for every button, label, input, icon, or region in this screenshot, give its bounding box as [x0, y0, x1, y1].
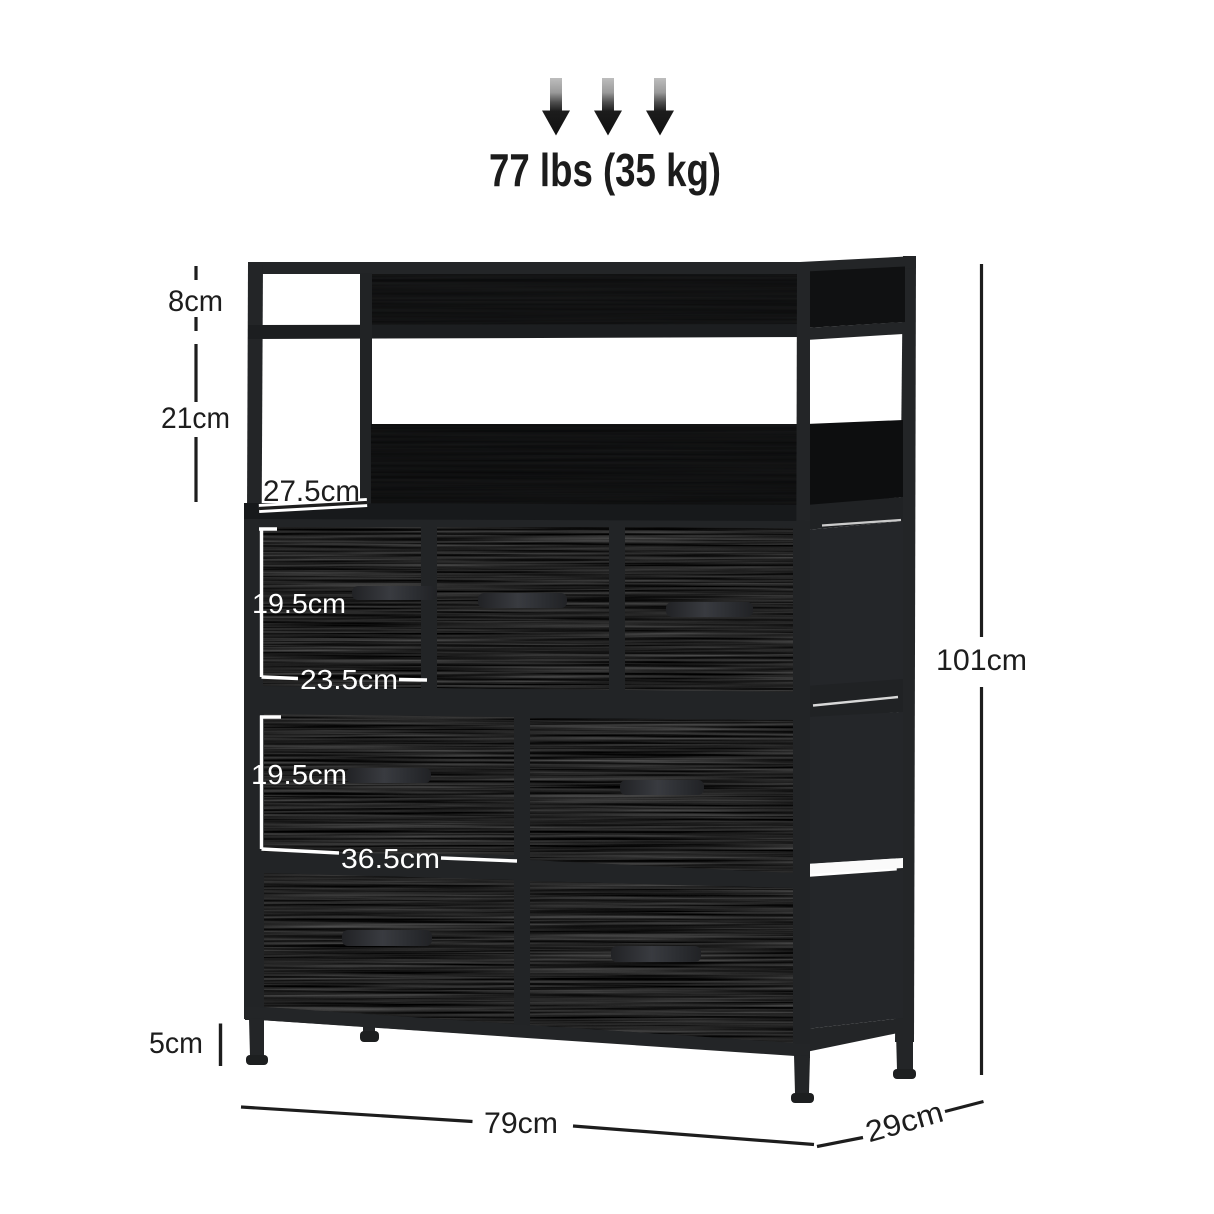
svg-text:101cm: 101cm: [936, 644, 1027, 677]
svg-text:79cm: 79cm: [484, 1107, 558, 1140]
svg-text:19.5cm: 19.5cm: [251, 759, 347, 790]
svg-text:36.5cm: 36.5cm: [341, 843, 440, 874]
svg-text:27.5cm: 27.5cm: [263, 475, 360, 508]
svg-text:23.5cm: 23.5cm: [300, 664, 398, 695]
svg-text:8cm: 8cm: [168, 285, 223, 318]
svg-text:19.5cm: 19.5cm: [252, 588, 346, 619]
svg-text:5cm: 5cm: [149, 1027, 203, 1060]
svg-text:21cm: 21cm: [161, 402, 230, 435]
svg-text:77 lbs (35 kg): 77 lbs (35 kg): [489, 144, 721, 196]
